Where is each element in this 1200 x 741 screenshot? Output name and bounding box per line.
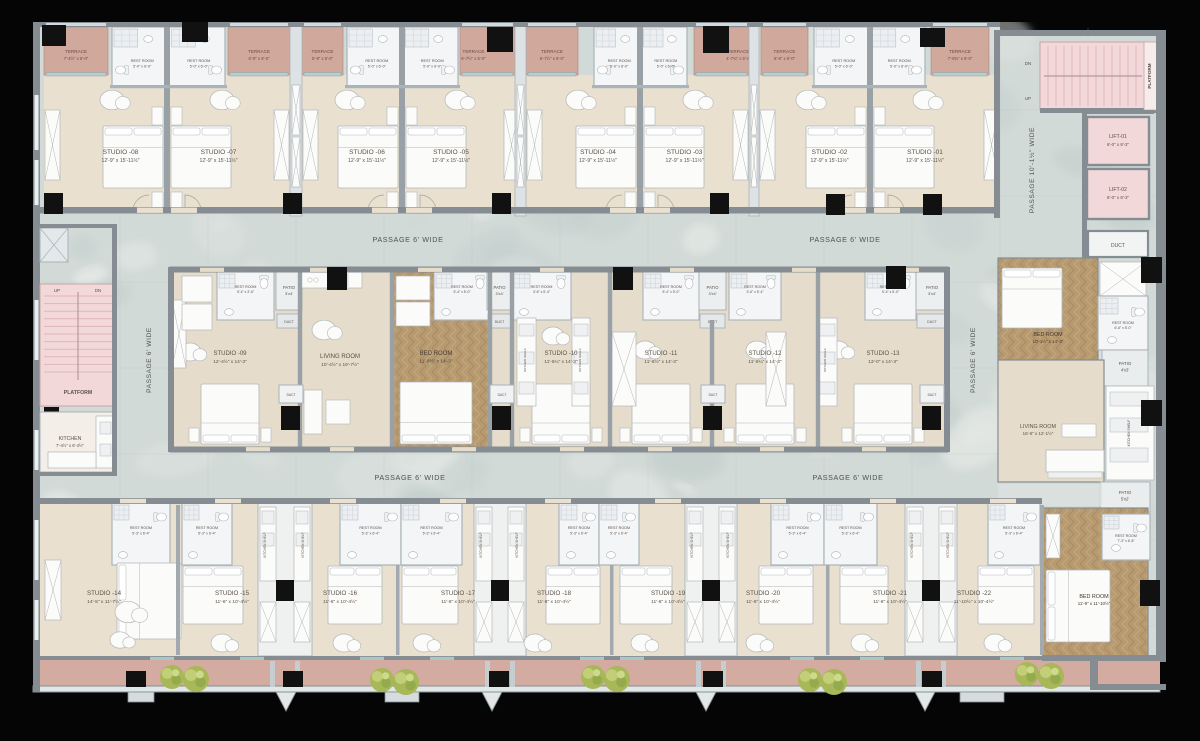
svg-text:5'-0" x 6'-0": 5'-0" x 6'-0" (368, 65, 387, 69)
svg-text:STUDIO -08: STUDIO -08 (103, 149, 139, 156)
svg-text:TERRACE: TERRACE (312, 49, 334, 54)
svg-text:REST ROOM: REST ROOM (187, 59, 210, 63)
svg-text:REST ROOM: REST ROOM (839, 526, 861, 530)
svg-text:12'-9" x 15'-11½": 12'-9" x 15'-11½" (665, 157, 703, 164)
svg-text:LIVING ROOM: LIVING ROOM (320, 354, 360, 360)
svg-text:DN: DN (95, 288, 102, 293)
svg-text:PASSAGE 6' WIDE: PASSAGE 6' WIDE (373, 235, 444, 244)
svg-text:10'-4½" x 19'-7½": 10'-4½" x 19'-7½" (321, 361, 359, 368)
svg-text:STUDIO -21: STUDIO -21 (873, 590, 908, 597)
svg-text:REST ROOM: REST ROOM (196, 526, 218, 530)
svg-text:STUDIO -12: STUDIO -12 (748, 351, 782, 357)
svg-text:STUDIO -13: STUDIO -13 (866, 351, 900, 357)
svg-text:PATIO: PATIO (1119, 361, 1132, 366)
svg-text:10'-1½" x 14'-3": 10'-1½" x 14'-3" (1033, 339, 1064, 344)
svg-text:DUCT: DUCT (928, 393, 937, 397)
svg-text:PATIO: PATIO (283, 285, 296, 290)
svg-text:11'-6" x 10'-4½": 11'-6" x 10'-4½" (746, 598, 780, 605)
svg-text:STUDIO -22: STUDIO -22 (957, 590, 992, 597)
svg-text:LIFT-01: LIFT-01 (1109, 134, 1127, 140)
svg-text:4'-7¾" x 6'-0": 4'-7¾" x 6'-0" (726, 56, 751, 61)
svg-text:DUCT: DUCT (1111, 243, 1125, 249)
svg-text:STUDIO -04: STUDIO -04 (580, 149, 616, 156)
svg-text:REST ROOM: REST ROOM (568, 526, 590, 530)
svg-text:3'-6" x 5'-4": 3'-6" x 5'-4" (533, 290, 551, 294)
svg-text:REST ROOM: REST ROOM (608, 526, 630, 530)
svg-text:TERRACE: TERRACE (728, 49, 750, 54)
svg-text:5'-3" x 6'-4": 5'-3" x 6'-4" (789, 532, 807, 536)
svg-text:6'-7½" x 6'-0": 6'-7½" x 6'-0" (461, 56, 486, 61)
svg-text:DUCT: DUCT (284, 320, 293, 324)
svg-text:REST ROOM: REST ROOM (832, 59, 855, 63)
svg-text:5'-3" x 6'-4": 5'-3" x 6'-4" (610, 532, 628, 536)
svg-text:11'-8½" x 14'-3": 11'-8½" x 14'-3" (644, 358, 677, 365)
svg-text:5'-4" x 5'-0": 5'-4" x 5'-0" (882, 290, 900, 294)
svg-text:REST ROOM: REST ROOM (660, 285, 682, 289)
svg-text:TERRACE: TERRACE (463, 49, 485, 54)
svg-text:PASSAGE 6' WIDE: PASSAGE 6' WIDE (813, 473, 884, 482)
svg-text:6'-7½" x 6'-0": 6'-7½" x 6'-0" (540, 56, 565, 61)
svg-text:LIVING ROOM: LIVING ROOM (1020, 424, 1056, 430)
svg-text:11'-6" x 10'-4½": 11'-6" x 10'-4½" (215, 598, 249, 605)
svg-text:STUDIO -06: STUDIO -06 (349, 149, 385, 156)
svg-text:REST ROOM: REST ROOM (1003, 526, 1025, 530)
svg-text:11'-10½" x 10'-4½": 11'-10½" x 10'-4½" (954, 598, 995, 605)
svg-text:13'-0" x 14'-3": 13'-0" x 14'-3" (868, 359, 898, 365)
svg-text:12'-4½" x 14'-3": 12'-4½" x 14'-3" (213, 358, 247, 365)
svg-text:UP: UP (1025, 96, 1031, 101)
svg-text:KITCHEN SHELF: KITCHEN SHELF (479, 532, 483, 557)
svg-text:4'x3': 4'x3' (1121, 368, 1130, 373)
svg-text:PATIO: PATIO (1119, 490, 1132, 495)
svg-text:BED ROOM: BED ROOM (1079, 594, 1109, 600)
svg-text:REST ROOM: REST ROOM (131, 59, 154, 63)
svg-text:KITCHEN SHELF: KITCHEN SHELF (263, 532, 267, 557)
svg-text:5'-0" x 6'-0": 5'-0" x 6'-0" (133, 65, 152, 69)
svg-text:6'-6" x 5'-0": 6'-6" x 5'-0" (1114, 326, 1132, 330)
svg-text:STUDIO -07: STUDIO -07 (201, 149, 237, 156)
svg-text:5'x2': 5'x2' (1121, 497, 1130, 502)
svg-text:5'-0" x 6'-0": 5'-0" x 6'-0" (423, 65, 442, 69)
svg-text:PASSAGE 10'-1½" WIDE: PASSAGE 10'-1½" WIDE (1028, 127, 1036, 213)
svg-text:3'x4': 3'x4' (285, 291, 293, 296)
svg-text:3'x4': 3'x4' (928, 291, 936, 296)
svg-text:16'-6" x 12'-1½": 16'-6" x 12'-1½" (1023, 431, 1054, 436)
svg-text:11'-8¼" x 14'-3": 11'-8¼" x 14'-3" (748, 359, 781, 365)
svg-text:REST ROOM: REST ROOM (1112, 321, 1134, 325)
svg-text:7'-8¾" x 6'-0": 7'-8¾" x 6'-0" (948, 56, 973, 61)
svg-text:REST ROOM: REST ROOM (608, 59, 631, 63)
svg-text:5'-3" x 6'-4": 5'-3" x 6'-4" (842, 532, 860, 536)
svg-text:6'-6" x 6'-0": 6'-6" x 6'-0" (774, 56, 796, 61)
svg-text:TERRACE: TERRACE (949, 49, 971, 54)
svg-text:5'-0" x 6'-0": 5'-0" x 6'-0" (610, 65, 629, 69)
svg-text:12'-9" x 15'-11½": 12'-9" x 15'-11½" (579, 157, 617, 164)
svg-text:12'-9" x 15'-11½": 12'-9" x 15'-11½" (101, 157, 139, 164)
svg-text:12'-9" x 15'-11½": 12'-9" x 15'-11½" (348, 157, 386, 164)
svg-text:PASSAGE 6' WIDE: PASSAGE 6' WIDE (146, 327, 153, 393)
svg-text:BED ROOM: BED ROOM (1033, 332, 1063, 338)
svg-text:KITCHEN SHELF: KITCHEN SHELF (523, 348, 527, 372)
svg-text:STUDIO -18: STUDIO -18 (537, 590, 572, 597)
svg-text:DUCT: DUCT (498, 393, 507, 397)
svg-text:STUDIO -03: STUDIO -03 (667, 149, 703, 156)
svg-text:KITCHEN SHELF: KITCHEN SHELF (726, 532, 730, 557)
svg-text:11'-6" x 10'-4½": 11'-6" x 10'-4½" (651, 598, 685, 605)
svg-text:3'x4': 3'x4' (709, 291, 717, 296)
svg-text:11'-6" x 10'-4½": 11'-6" x 10'-4½" (873, 598, 907, 605)
svg-text:DUCT: DUCT (287, 393, 296, 397)
svg-text:PATIO: PATIO (494, 285, 507, 290)
svg-text:11'-6" x 10'-4½": 11'-6" x 10'-4½" (441, 598, 475, 605)
svg-text:TERRACE: TERRACE (774, 49, 796, 54)
svg-text:REST ROOM: REST ROOM (888, 59, 911, 63)
svg-text:STUDIO -09: STUDIO -09 (213, 351, 247, 357)
svg-text:STUDIO -20: STUDIO -20 (746, 590, 781, 597)
svg-text:5'-3" x 6'-4": 5'-3" x 6'-4" (1005, 532, 1023, 536)
svg-text:12'-9" x 15'-11½": 12'-9" x 15'-11½" (906, 157, 944, 164)
svg-text:DUCT: DUCT (709, 393, 718, 397)
svg-text:STUDIO -17: STUDIO -17 (441, 590, 476, 597)
svg-text:DN: DN (1025, 61, 1032, 66)
svg-text:12'-9" x 15'-11½": 12'-9" x 15'-11½" (432, 157, 470, 164)
svg-text:TERRACE: TERRACE (541, 49, 563, 54)
svg-text:BED ROOM: BED ROOM (420, 351, 453, 357)
svg-text:KITCHEN SHELF: KITCHEN SHELF (1127, 420, 1131, 447)
svg-text:5'-0" x 6'-0": 5'-0" x 6'-0" (835, 65, 854, 69)
svg-text:5'-4" x 5'-0": 5'-4" x 5'-0" (662, 290, 680, 294)
svg-text:11'-6" x 10'-4½": 11'-6" x 10'-4½" (537, 598, 571, 605)
svg-text:STUDIO -10: STUDIO -10 (544, 351, 578, 357)
svg-text:PLATFORM: PLATFORM (1147, 63, 1152, 88)
svg-text:5'-0" x 6'-0": 5'-0" x 6'-0" (190, 65, 209, 69)
svg-text:5'-3" x 6'-4": 5'-3" x 6'-4" (198, 532, 216, 536)
svg-text:3'x4': 3'x4' (496, 291, 504, 296)
svg-text:STUDIO -05: STUDIO -05 (433, 149, 469, 156)
svg-text:TERRACE: TERRACE (248, 49, 270, 54)
svg-text:PASSAGE 6' WIDE: PASSAGE 6' WIDE (970, 327, 977, 393)
svg-text:5'-3" x 6'-4": 5'-3" x 6'-4" (362, 532, 380, 536)
svg-text:6'-0" x 8'-3": 6'-0" x 8'-3" (1107, 195, 1130, 200)
svg-text:STUDIO -11: STUDIO -11 (645, 351, 678, 357)
svg-text:LIFT-02: LIFT-02 (1109, 187, 1127, 193)
svg-text:7'-4½" x 6'-4½": 7'-4½" x 6'-4½" (56, 443, 85, 448)
svg-text:12'-9" x 15'-11½": 12'-9" x 15'-11½" (810, 157, 848, 164)
svg-text:PLATFORM: PLATFORM (64, 390, 92, 396)
svg-text:REST ROOM: REST ROOM (1115, 534, 1137, 538)
svg-text:5'-3" x 6'-4": 5'-3" x 6'-4" (570, 532, 588, 536)
svg-text:REST ROOM: REST ROOM (531, 285, 553, 289)
svg-text:KITCHEN SHELF: KITCHEN SHELF (690, 532, 694, 557)
svg-text:14'-5" x 11'-7½": 14'-5" x 11'-7½" (87, 598, 121, 605)
svg-text:KITCHEN SHELF: KITCHEN SHELF (301, 532, 305, 557)
svg-text:PASSAGE 6' WIDE: PASSAGE 6' WIDE (375, 473, 446, 482)
svg-text:7'-3" x 6'-8": 7'-3" x 6'-8" (1117, 539, 1135, 543)
svg-text:STUDIO -14: STUDIO -14 (87, 590, 122, 597)
svg-text:STUDIO -19: STUDIO -19 (651, 590, 686, 597)
svg-text:REST ROOM: REST ROOM (786, 526, 808, 530)
svg-text:3'-6" x 5'-4": 3'-6" x 5'-4" (746, 290, 764, 294)
svg-text:REST ROOM: REST ROOM (421, 59, 444, 63)
svg-text:KITCHEN SHELF: KITCHEN SHELF (910, 532, 914, 557)
svg-text:REST ROOM: REST ROOM (744, 285, 766, 289)
svg-text:5'-4" x 3'-6": 5'-4" x 3'-6" (237, 290, 255, 294)
svg-text:5'-3" x 6'-4": 5'-3" x 6'-4" (132, 532, 150, 536)
svg-text:REST ROOM: REST ROOM (365, 59, 388, 63)
svg-text:REST ROOM: REST ROOM (235, 285, 257, 289)
svg-text:KITCHEN SHELF: KITCHEN SHELF (515, 532, 519, 557)
svg-text:STUDIO -15: STUDIO -15 (215, 590, 250, 597)
svg-text:KITCHEN SHELF: KITCHEN SHELF (946, 532, 950, 557)
svg-text:6'-0" x 8'-3": 6'-0" x 8'-3" (1107, 142, 1130, 147)
svg-text:6'-9" x 6'-0": 6'-9" x 6'-0" (248, 56, 270, 61)
svg-text:5'-3" x 6'-4": 5'-3" x 6'-4" (423, 532, 441, 536)
svg-text:DUCT: DUCT (927, 320, 936, 324)
svg-text:REST ROOM: REST ROOM (420, 526, 442, 530)
svg-text:PATIO: PATIO (926, 285, 939, 290)
svg-text:11'-8½" x 14'-3": 11'-8½" x 14'-3" (419, 358, 452, 365)
svg-text:PATIO: PATIO (707, 285, 720, 290)
svg-text:KITCHEN SHELF: KITCHEN SHELF (578, 348, 582, 372)
svg-text:REST ROOM: REST ROOM (451, 285, 473, 289)
svg-text:5'-9" x 6'-0": 5'-9" x 6'-0" (312, 56, 334, 61)
svg-text:5'-0" x 6'-0": 5'-0" x 6'-0" (657, 65, 676, 69)
svg-text:STUDIO -16: STUDIO -16 (323, 590, 358, 597)
svg-text:KITCHEN: KITCHEN (59, 436, 82, 442)
svg-text:PASSAGE 6' WIDE: PASSAGE 6' WIDE (810, 235, 881, 244)
svg-text:11'-6" x 10'-4½": 11'-6" x 10'-4½" (323, 598, 357, 605)
svg-text:12'-9" x 15'-11½": 12'-9" x 15'-11½" (199, 157, 237, 164)
svg-text:11'-9" x 11'-10½": 11'-9" x 11'-10½" (1078, 601, 1111, 606)
svg-text:STUDIO -01: STUDIO -01 (907, 149, 943, 156)
svg-text:REST ROOM: REST ROOM (654, 59, 677, 63)
svg-text:DUCT: DUCT (495, 320, 504, 324)
svg-text:KITCHEN SHELF: KITCHEN SHELF (823, 348, 827, 372)
svg-text:STUDIO -02: STUDIO -02 (812, 149, 848, 156)
svg-text:7'-4½" x 6'-0": 7'-4½" x 6'-0" (64, 56, 89, 61)
svg-text:UP: UP (54, 288, 60, 293)
svg-text:REST ROOM: REST ROOM (130, 526, 152, 530)
svg-text:11'-8¼" x 14'-3": 11'-8¼" x 14'-3" (544, 359, 577, 365)
svg-text:5'-0" x 6'-0": 5'-0" x 6'-0" (890, 65, 909, 69)
svg-text:REST ROOM: REST ROOM (359, 526, 381, 530)
svg-text:5'-4" x 5'-0": 5'-4" x 5'-0" (453, 290, 471, 294)
svg-text:TERRACE: TERRACE (65, 49, 87, 54)
